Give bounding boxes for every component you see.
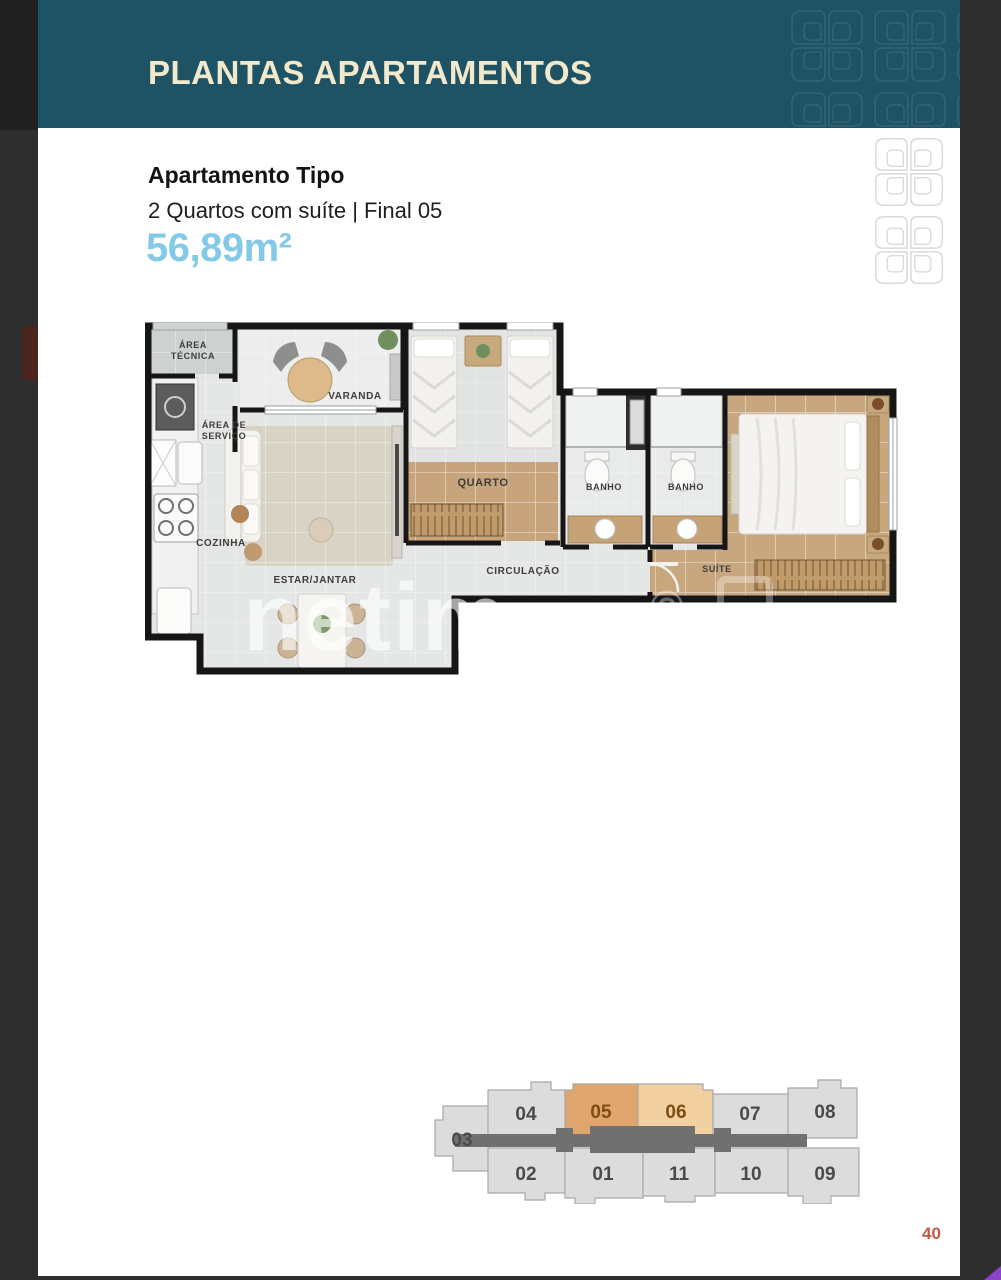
floor-plan: ÁREA TÉCNICA ÁREA DE SERVIÇO VARANDA COZ…	[145, 322, 902, 680]
label-area-tecnica-1: ÁREA	[179, 340, 207, 350]
unit-11: 11	[669, 1164, 690, 1185]
tv	[395, 444, 399, 536]
label-banho-2: BANHO	[668, 482, 704, 492]
wardrobe-quarto	[411, 504, 503, 536]
unit-02: 02	[515, 1164, 536, 1185]
sink	[178, 442, 202, 484]
ghost-logo-glyph	[717, 576, 773, 632]
kitchen-appliance-low	[157, 588, 191, 634]
label-banho-1: BANHO	[586, 482, 622, 492]
page-number: 40	[922, 1224, 941, 1244]
wardrobe-suite	[755, 560, 885, 590]
label-varanda: VARANDA	[328, 391, 381, 402]
background-page-peek	[22, 326, 38, 380]
unit-01: 01	[592, 1164, 614, 1185]
label-cozinha: COZINHA	[196, 538, 246, 549]
shower-banho2	[651, 395, 722, 447]
key-plan-drawing: 03 04 05 06 07 08 02 01 11 10 09	[433, 1078, 865, 1204]
coffee-table	[309, 518, 333, 542]
unit-06: 06	[665, 1102, 686, 1123]
page-header: PLANTAS APARTAMENTOS	[38, 0, 960, 128]
varanda-table	[288, 358, 332, 402]
label-area-servico-1: ÁREA DE	[202, 420, 246, 430]
headboard	[867, 416, 879, 532]
watermark: netim	[243, 570, 509, 666]
page-title: PLANTAS APARTAMENTOS	[148, 54, 593, 92]
corner-artifact	[984, 1266, 1001, 1280]
unit-04: 04	[515, 1104, 537, 1125]
key-plan: 03 04 05 06 07 08 02 01 11 10 09	[433, 1078, 865, 1204]
flower-pattern-body	[835, 132, 960, 292]
unit-05: 05	[590, 1102, 612, 1123]
pouf	[231, 505, 249, 523]
apartment-area: 56,89m²	[146, 226, 291, 271]
unit-10: 10	[740, 1164, 761, 1185]
brochure-page: PLANTAS APARTAMENTOS Apartamento Tipo 2 …	[38, 0, 960, 1276]
label-area-servico-2: SERVIÇO	[202, 431, 247, 441]
label-quarto: QUARTO	[457, 477, 508, 489]
unit-08: 08	[814, 1102, 835, 1123]
plant-quarto	[476, 344, 490, 358]
oven	[156, 384, 194, 430]
label-area-tecnica-2: TÉCNICA	[171, 351, 215, 361]
apartment-type-label: Apartamento Tipo	[148, 162, 344, 189]
viewer-dark-edge	[0, 0, 38, 130]
varanda-plant	[378, 330, 398, 350]
ghost-copyright-mark: ©	[650, 580, 684, 634]
pouf-2	[244, 543, 262, 561]
unit-03: 03	[451, 1130, 472, 1151]
unit-07: 07	[739, 1104, 760, 1125]
varanda-console	[390, 354, 401, 400]
label-suite: SUÍTE	[702, 564, 732, 574]
apartment-description: 2 Quartos com suíte | Final 05	[148, 198, 442, 224]
unit-09: 09	[814, 1164, 835, 1185]
suite-bench	[731, 434, 739, 514]
